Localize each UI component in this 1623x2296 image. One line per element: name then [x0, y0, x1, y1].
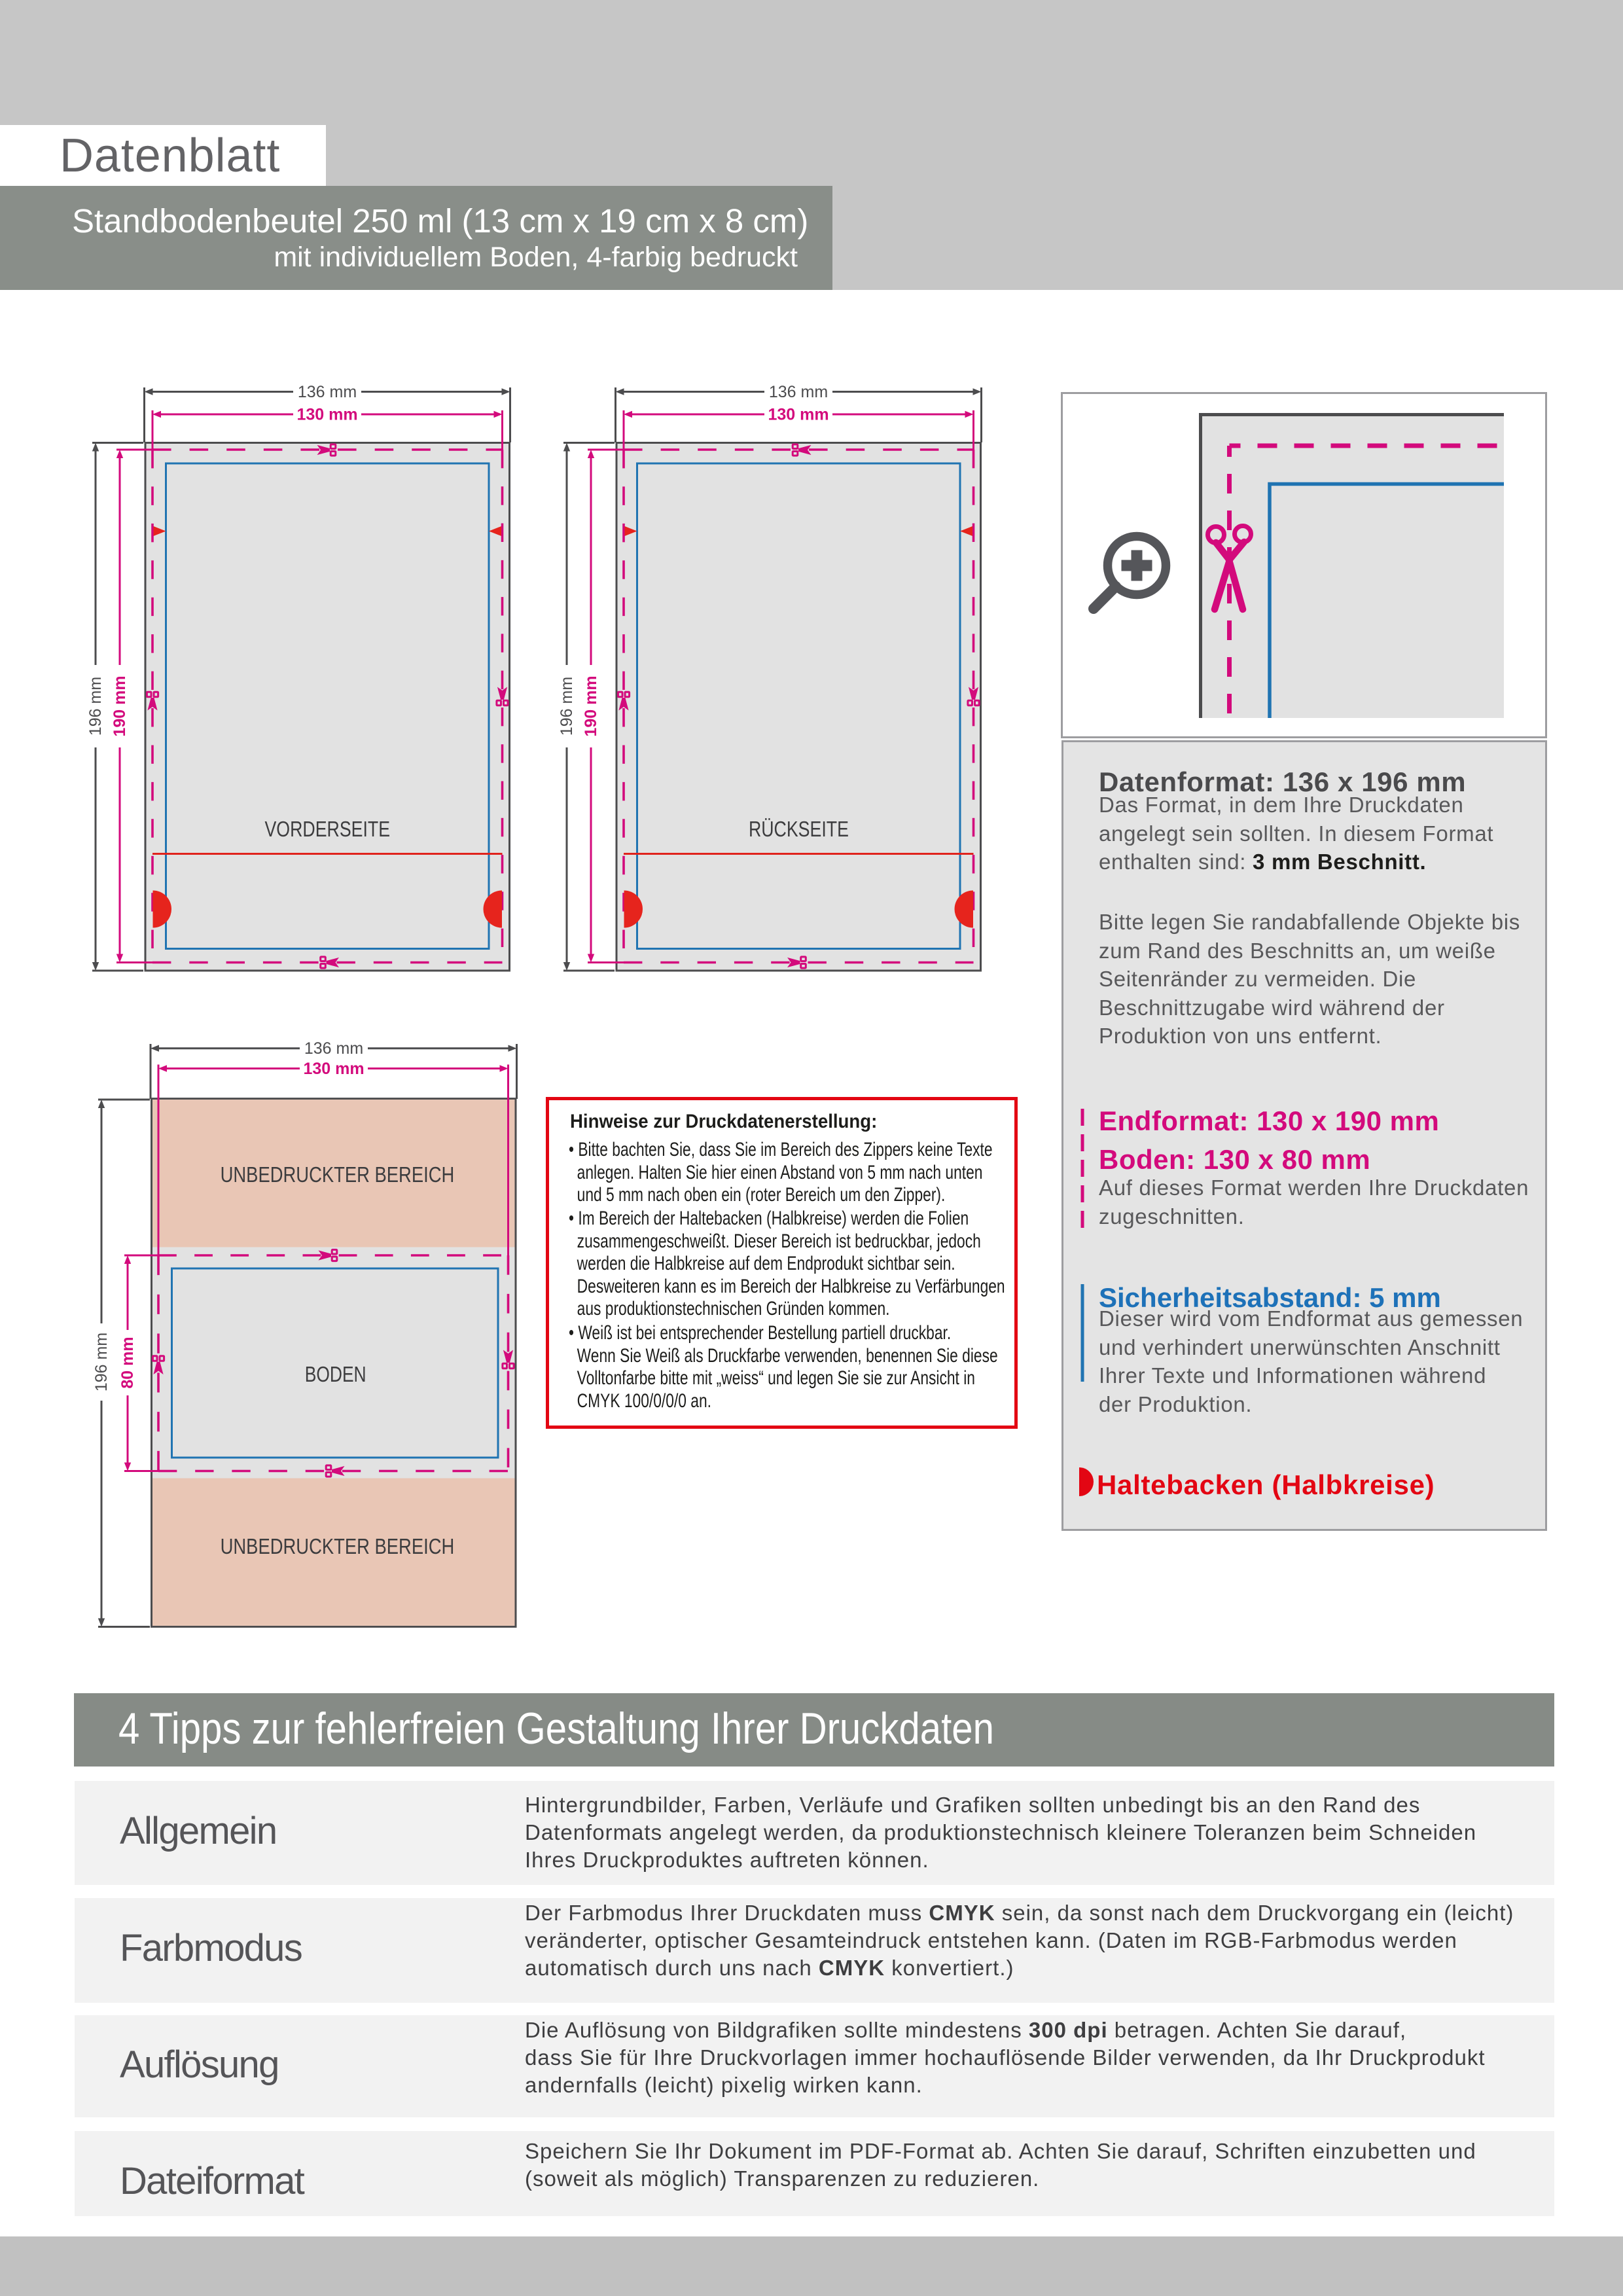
svg-text:136 mm: 136 mm	[304, 1039, 363, 1058]
svg-text:130 mm: 130 mm	[296, 406, 357, 424]
svg-text:130 mm: 130 mm	[768, 406, 829, 424]
svg-text:196 mm: 196 mm	[558, 677, 576, 736]
svg-text:130 mm: 130 mm	[303, 1060, 364, 1078]
svg-text:190 mm: 190 mm	[111, 675, 129, 736]
svg-text:136 mm: 136 mm	[769, 383, 828, 401]
svg-text:196 mm: 196 mm	[92, 1333, 111, 1391]
svg-text:80 mm: 80 mm	[118, 1336, 137, 1388]
svg-text:136 mm: 136 mm	[298, 383, 357, 401]
svg-text:196 mm: 196 mm	[86, 677, 105, 736]
svg-text:190 mm: 190 mm	[582, 675, 600, 736]
